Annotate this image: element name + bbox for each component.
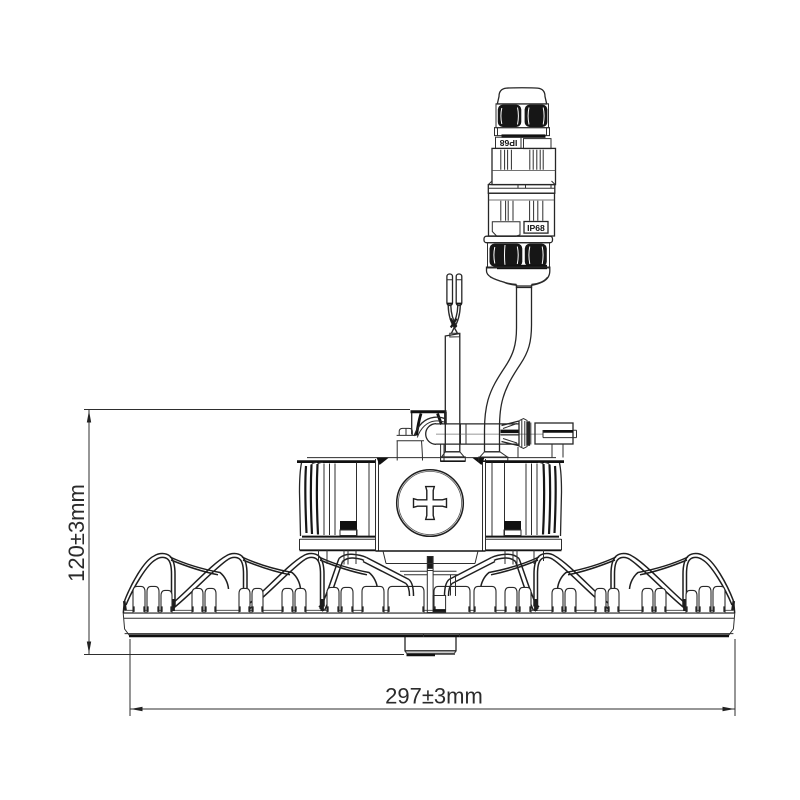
svg-text:IP68: IP68: [527, 223, 545, 233]
svg-text:IP68: IP68: [499, 138, 517, 148]
svg-text:297±3mm: 297±3mm: [385, 684, 483, 709]
svg-text:120±3mm: 120±3mm: [64, 484, 89, 582]
